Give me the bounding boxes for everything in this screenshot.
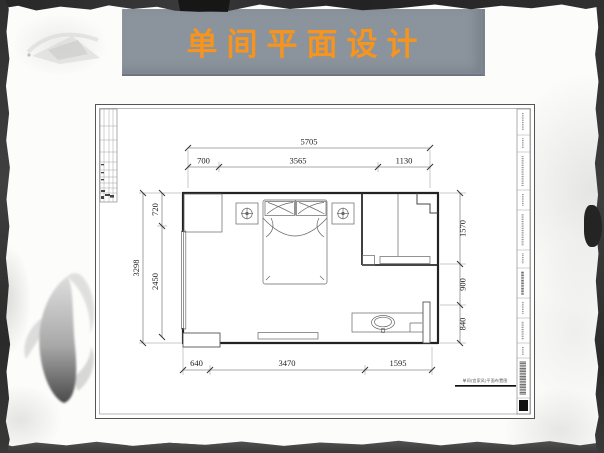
grunge-border-bottom (0, 436, 604, 453)
nightstand-right (332, 203, 354, 224)
walls (182, 192, 439, 344)
drawing-sheet: 5705 700 3565 1130 3298 720 2450 1570 90… (95, 104, 535, 419)
caption-underline (455, 385, 516, 387)
entry-cabinet (183, 333, 220, 347)
grunge-border-left (0, 0, 13, 453)
sink-vanity (352, 313, 425, 333)
title-block-microtext (519, 113, 528, 411)
dim-right-1570: 1570 (458, 220, 468, 237)
sink-icon (372, 316, 395, 333)
corner-notch (417, 193, 438, 213)
dim-bottom-640: 640 (190, 358, 203, 368)
dim-right-900: 900 (458, 278, 468, 291)
dim-bottom-3470: 3470 (279, 358, 296, 368)
presentation-slide: 单间平面设计 (0, 0, 604, 453)
furniture (183, 194, 430, 347)
dim-left-2450: 2450 (150, 273, 160, 290)
wall-pier (423, 302, 430, 343)
pillow-right (297, 202, 327, 216)
dim-bottom-1595: 1595 (390, 358, 407, 368)
tv-bench (258, 333, 318, 340)
revision-table (100, 109, 117, 202)
wardrobe (184, 194, 222, 232)
bed (263, 200, 327, 284)
title-banner: 单间平面设计 (122, 9, 485, 76)
title-block (517, 109, 530, 414)
ink-bird-art (18, 20, 113, 85)
koi-fish-art (6, 258, 108, 418)
lamp-icon (337, 208, 349, 220)
closet-interior (363, 194, 431, 265)
grunge-border-blob (584, 205, 602, 247)
dim-top-total: 5705 (301, 137, 318, 147)
grunge-border-right (592, 0, 604, 453)
floor-plan-drawing: 5705 700 3565 1130 3298 720 2450 1570 90… (95, 104, 535, 419)
dim-top-1130: 1130 (396, 156, 413, 166)
dim-right-840: 840 (458, 318, 468, 331)
pillow-left (265, 202, 295, 216)
floor-plan: 5705 700 3565 1130 3298 720 2450 1570 90… (131, 137, 516, 387)
dim-left-720: 720 (150, 203, 160, 216)
slide-title: 单间平面设计 (178, 19, 427, 64)
lamp-icon (241, 208, 253, 220)
title-block-stamp (519, 400, 528, 411)
dim-left-total: 3298 (131, 260, 141, 277)
nightstand-left (236, 203, 258, 224)
dim-top-3565: 3565 (290, 156, 307, 166)
dim-top-700: 700 (197, 156, 210, 166)
window-lines (181, 231, 185, 329)
caption-text: 单间(宜家风)平面布置图 (462, 377, 507, 383)
drawing-caption: 单间(宜家风)平面布置图 (455, 377, 516, 387)
sheet-border (96, 105, 535, 419)
